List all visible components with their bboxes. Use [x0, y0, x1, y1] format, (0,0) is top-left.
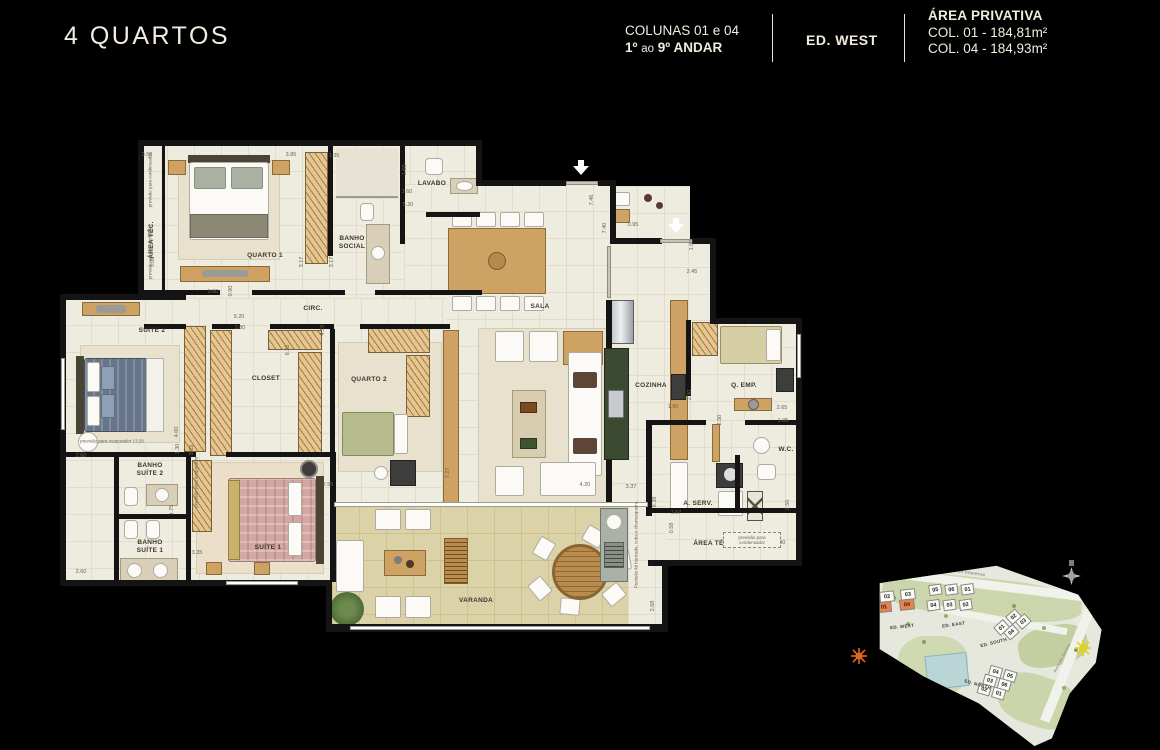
- sink: [127, 563, 142, 578]
- bed-headboard: [76, 356, 84, 434]
- dimension-label: 7.46: [589, 195, 595, 206]
- pantry-item: [644, 194, 652, 202]
- fan: [748, 399, 759, 410]
- entrance-door: [566, 181, 598, 185]
- room-label-banho-social: BANHO SOCIAL: [339, 235, 365, 251]
- unit-cell-highlighted: 04: [899, 598, 915, 611]
- bed-throw: [228, 480, 240, 560]
- wardrobe: [406, 355, 430, 417]
- window: [226, 581, 298, 585]
- sofa: [336, 540, 364, 592]
- dimension-label: 2.50: [717, 415, 723, 426]
- building-label: ED. WEST: [806, 32, 878, 48]
- compass-icon: [1060, 560, 1082, 588]
- dimension-label: 3.17: [329, 257, 335, 268]
- toilet: [757, 464, 776, 480]
- dimension-label: 1.35: [329, 153, 340, 159]
- unit-cell: 03: [942, 599, 956, 612]
- wall: [360, 324, 450, 329]
- pillow: [766, 329, 781, 361]
- room-label-closet: CLOSET: [252, 375, 280, 383]
- dimension-label: 1.68: [402, 165, 408, 176]
- wall: [610, 180, 616, 244]
- pillow: [394, 414, 408, 454]
- side-table: [206, 562, 222, 575]
- window: [797, 334, 801, 378]
- pantry-item: [656, 202, 663, 209]
- note-label: previsão para condensador: [148, 225, 153, 280]
- dimension-label: 1.80: [689, 240, 695, 251]
- dimension-label: 7.27: [445, 468, 451, 479]
- varanda-railing: [350, 626, 650, 630]
- pillow: [288, 522, 302, 556]
- dimension-label: 2.68: [650, 601, 656, 612]
- wall: [710, 238, 716, 324]
- site-map: Rua Frei Jacinto Infantino Avenida Estre…: [868, 556, 1160, 750]
- header-divider: [772, 14, 773, 62]
- cooktop: [671, 374, 686, 400]
- sink: [155, 488, 169, 502]
- dimension-label: 3.25: [189, 445, 195, 456]
- dimension-label: 0.90: [228, 286, 234, 297]
- dimension-label: 2.65: [777, 405, 788, 411]
- room-label-wc: W.C.: [778, 446, 793, 454]
- dimension-label: 0.95: [628, 222, 639, 228]
- dimension-label: 6.38: [652, 497, 658, 508]
- wardrobe: [184, 326, 206, 452]
- header-divider: [904, 14, 905, 62]
- tv-panel-wall: [443, 330, 459, 506]
- note-label: previsão para condensador: [723, 532, 781, 548]
- dimension-label: 3.17: [299, 257, 305, 268]
- wall: [162, 144, 165, 294]
- dimension-label: 2.45: [687, 269, 698, 275]
- sliding-door: [607, 246, 611, 298]
- wall: [328, 144, 333, 256]
- dimension-label: 2.50: [785, 500, 791, 511]
- nightstand: [168, 160, 186, 175]
- room-label-quarto2: QUARTO 2: [351, 376, 387, 384]
- page: 4 QUARTOS COLUNAS 01 e 04 1º ao 9º ANDAR…: [0, 0, 1160, 750]
- armchair: [405, 509, 431, 530]
- nightstand: [272, 160, 290, 175]
- wardrobe: [692, 322, 718, 356]
- pillow: [101, 366, 115, 390]
- entrance-arrow-icon: [573, 160, 589, 176]
- chair: [524, 212, 544, 227]
- note-label: previsão para evaporador: [194, 456, 199, 507]
- wall: [476, 180, 566, 186]
- dimension-label: 9.20: [234, 314, 245, 320]
- sink: [753, 437, 770, 454]
- room-label-aserv: A. SERV.: [683, 500, 713, 508]
- note-label: Previsão kit bancada, cuba e churrasquei…: [634, 502, 639, 589]
- dimension-label: 4.00: [174, 427, 180, 438]
- shaft: [747, 491, 763, 521]
- columns-floors-block: COLUNAS 01 e 04 1º ao 9º ANDAR: [625, 22, 739, 58]
- wardrobe: [298, 352, 322, 456]
- toilet: [425, 158, 443, 175]
- pillow: [101, 394, 115, 418]
- room-label-varanda: VARANDA: [459, 597, 493, 605]
- wall: [735, 455, 740, 512]
- dimension-label: 5.20: [403, 202, 414, 208]
- armchair: [375, 596, 401, 618]
- wardrobe: [268, 330, 322, 350]
- wall: [114, 457, 119, 581]
- pool: [924, 652, 969, 690]
- wall: [138, 140, 144, 300]
- chair: [452, 296, 472, 311]
- floor-service-entry: [688, 240, 712, 324]
- window: [61, 358, 65, 430]
- dimension-label: 2.55: [323, 482, 334, 488]
- dimension-label: 3.80: [208, 289, 219, 295]
- armchair: [495, 466, 524, 496]
- room-label-sala: SALA: [531, 303, 550, 311]
- wall: [326, 580, 332, 632]
- room-label-banho-suite1: BANHO SUÍTE 1: [137, 539, 164, 555]
- unit-cell: 01: [960, 583, 974, 596]
- building-label-ed-west: ED. WEST: [890, 623, 915, 630]
- service-entrance-arrow-icon: [668, 218, 684, 234]
- wall: [375, 290, 482, 295]
- unit-cell: 06: [944, 583, 958, 596]
- wall: [710, 318, 802, 324]
- single-bed: [342, 412, 394, 456]
- dimension-label: 1.05: [778, 418, 789, 424]
- note-label: previsão para evaporador | 3.20: [80, 439, 144, 444]
- grill: [604, 542, 624, 568]
- room-label-suite2: SUÍTE 2: [139, 327, 166, 335]
- unit-cell: 04: [926, 599, 940, 612]
- unit-cell-highlighted: 01: [876, 601, 892, 614]
- tv: [202, 270, 248, 277]
- wall: [745, 420, 802, 425]
- bed-fold: [146, 358, 164, 432]
- wall: [330, 452, 336, 582]
- room-label-banho-suite2: BANHO SUÍTE 2: [137, 462, 164, 478]
- wall: [610, 238, 662, 244]
- chair: [500, 296, 520, 311]
- tray: [520, 438, 537, 449]
- dimension-label: 6.35: [285, 345, 291, 356]
- counter-sink: [606, 514, 622, 530]
- sunrise-sun-icon: [1075, 640, 1091, 656]
- dimension-label: 1.95: [668, 404, 679, 410]
- dimension-label: 0.58: [669, 523, 675, 534]
- dimension-label: 2.30: [687, 390, 693, 401]
- dimension-label: 1.60: [402, 189, 413, 195]
- room-label-qemp: Q. EMP.: [731, 382, 757, 390]
- wall: [662, 560, 668, 632]
- nightstand: [776, 368, 794, 392]
- chaise: [540, 462, 596, 496]
- page-title: 4 QUARTOS: [64, 22, 230, 51]
- columns-label: COLUNAS 01 e 04: [625, 22, 739, 39]
- tray: [406, 560, 414, 568]
- bed-headboard: [316, 476, 324, 564]
- armchair: [495, 331, 524, 362]
- wall: [426, 212, 480, 217]
- slatted-bench: [444, 538, 468, 584]
- pillow: [87, 362, 100, 392]
- wall: [252, 290, 345, 295]
- sink: [371, 246, 385, 260]
- dimension-label: 4.20: [580, 482, 591, 488]
- private-area-col01: COL. 01 - 184,81m²: [928, 25, 1047, 42]
- shower: [336, 148, 398, 198]
- wall: [646, 420, 706, 425]
- desk: [390, 460, 416, 486]
- dimension-label: 1.30: [175, 444, 181, 455]
- private-area-col04: COL. 04 - 184,93m²: [928, 41, 1047, 58]
- sunset-sun-icon: [851, 648, 867, 664]
- kitchen-sink: [608, 390, 624, 418]
- room-label-circ: CIRC.: [303, 305, 322, 313]
- door-leaf: [712, 424, 720, 462]
- sofa-pillow: [573, 372, 597, 388]
- sofa-pillow: [573, 438, 597, 454]
- sliding-glass-door: [334, 502, 648, 507]
- dimension-label: 3.37: [626, 484, 637, 490]
- centerpiece: [488, 252, 506, 270]
- building-label-ed-east: ED. EAST: [942, 620, 966, 628]
- wall: [138, 140, 482, 146]
- armchair: [375, 509, 401, 530]
- building-ed-west: 02 03 01 04: [879, 588, 917, 613]
- wall: [606, 460, 612, 506]
- dimension-label: 2.80: [235, 325, 246, 331]
- wall: [648, 560, 802, 566]
- bidet: [146, 520, 160, 539]
- wall: [686, 320, 691, 396]
- dimension-label: 4.15: [320, 325, 326, 336]
- floors-to-word: ao: [641, 43, 654, 55]
- wall: [186, 457, 191, 581]
- pantry-shelf: [614, 192, 630, 206]
- toilet: [360, 203, 374, 221]
- dimension-label: 2.60: [76, 569, 87, 575]
- floors-label: 1º ao 9º ANDAR: [625, 39, 739, 58]
- chair: [500, 212, 520, 227]
- unit-cell: 02: [959, 598, 973, 611]
- pillow: [87, 396, 100, 426]
- unit-cell: 01: [991, 686, 1007, 700]
- pantry-shelf: [614, 209, 630, 223]
- tray: [520, 402, 537, 413]
- wardrobe: [368, 328, 430, 353]
- armchair: [405, 596, 431, 618]
- dimension-label: 2.60: [76, 453, 87, 459]
- dimension-label: 7.40: [602, 223, 608, 234]
- note-label: previsão para condensador: [148, 153, 153, 208]
- dimension-label: 1.75: [169, 505, 175, 516]
- wall: [60, 294, 66, 586]
- site-map-ground: Rua Frei Jacinto Infantino Avenida Estre…: [868, 556, 1160, 750]
- dimension-label: 3.35: [192, 550, 203, 556]
- coffee-table: [384, 550, 426, 576]
- plant: [330, 592, 364, 626]
- toilet: [124, 487, 138, 506]
- sofa: [568, 352, 602, 476]
- wall: [606, 300, 612, 348]
- wall: [646, 508, 802, 513]
- floors-to: 9º ANDAR: [658, 40, 722, 55]
- armchair: [529, 331, 558, 362]
- floors-from: 1º: [625, 40, 637, 55]
- room-label-quarto1: QUARTO 1: [247, 252, 283, 260]
- private-area-block: ÁREA PRIVATIVA COL. 01 - 184,81m² COL. 0…: [928, 8, 1047, 58]
- sink: [153, 563, 168, 578]
- toilet: [124, 520, 138, 539]
- pillow: [288, 482, 302, 516]
- pillow: [231, 167, 263, 189]
- tv: [96, 305, 126, 313]
- wardrobe: [305, 152, 328, 264]
- building-label-ed-south: ED. SOUTH: [980, 637, 1008, 648]
- dimension-label: 1.67: [671, 510, 682, 516]
- chair: [476, 296, 496, 311]
- wall: [114, 514, 186, 519]
- dimension-label: 3.85: [286, 152, 297, 158]
- unit-cell: 05: [928, 583, 942, 596]
- room-label-cozinha: COZINHA: [635, 382, 667, 390]
- building-ed-east: 05 06 01 04 03 02: [928, 579, 977, 615]
- bed-blanket: [190, 214, 268, 238]
- tray: [394, 556, 402, 564]
- private-area-title: ÁREA PRIVATIVA: [928, 8, 1047, 25]
- room-label-suite1: SUÍTE 1: [255, 544, 282, 552]
- desk-chair: [374, 466, 388, 480]
- wardrobe: [210, 330, 232, 456]
- pillow: [194, 167, 226, 189]
- room-label-lavabo: LAVABO: [418, 180, 446, 188]
- sink: [456, 181, 473, 191]
- side-table: [254, 562, 270, 575]
- wall: [226, 452, 336, 457]
